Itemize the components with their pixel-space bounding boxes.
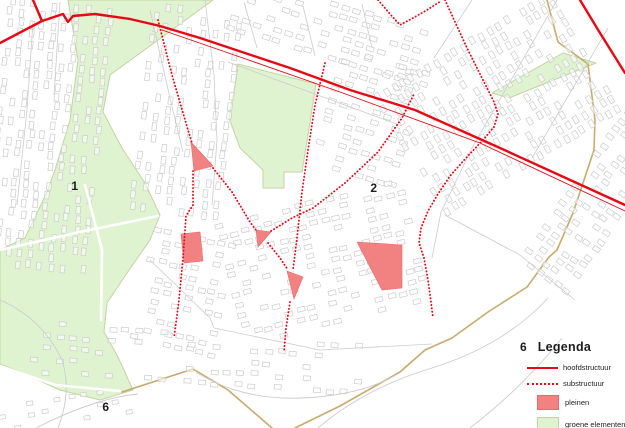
legend-rows: hoofdstructuur substructuur pleinen groe… [527,363,625,428]
groene-elementen-swatch [537,417,559,428]
hoofdstructuur-line-swatch [527,367,558,369]
legend-header: 6 Legenda [520,340,625,354]
district-label-6: 6 [102,400,109,414]
legend-number: 6 [520,340,527,354]
legend-item-label: hoofdstructuur [563,363,611,372]
legend-item-label: substructuur [563,379,604,388]
legend-item-label: pleinen [565,398,589,407]
legend-item-groene-elementen: groene elementen [527,417,625,428]
map-canvas: 1 2 6 6 Legenda hoofdstructuur substruct… [0,0,625,428]
legend-item-label: groene elementen [565,420,625,428]
district-label-2: 2 [370,181,377,195]
legend-item-substructuur: substructuur [527,379,625,388]
district-label-1: 1 [71,179,78,193]
substructuur-dotted-swatch [527,383,558,385]
legend: 6 Legenda hoofdstructuur substructuur pl… [506,340,625,428]
legend-item-pleinen: pleinen [527,395,625,410]
legend-title: Legenda [538,340,592,354]
pleinen-swatch [537,395,559,410]
legend-item-hoofdstructuur: hoofdstructuur [527,363,625,372]
